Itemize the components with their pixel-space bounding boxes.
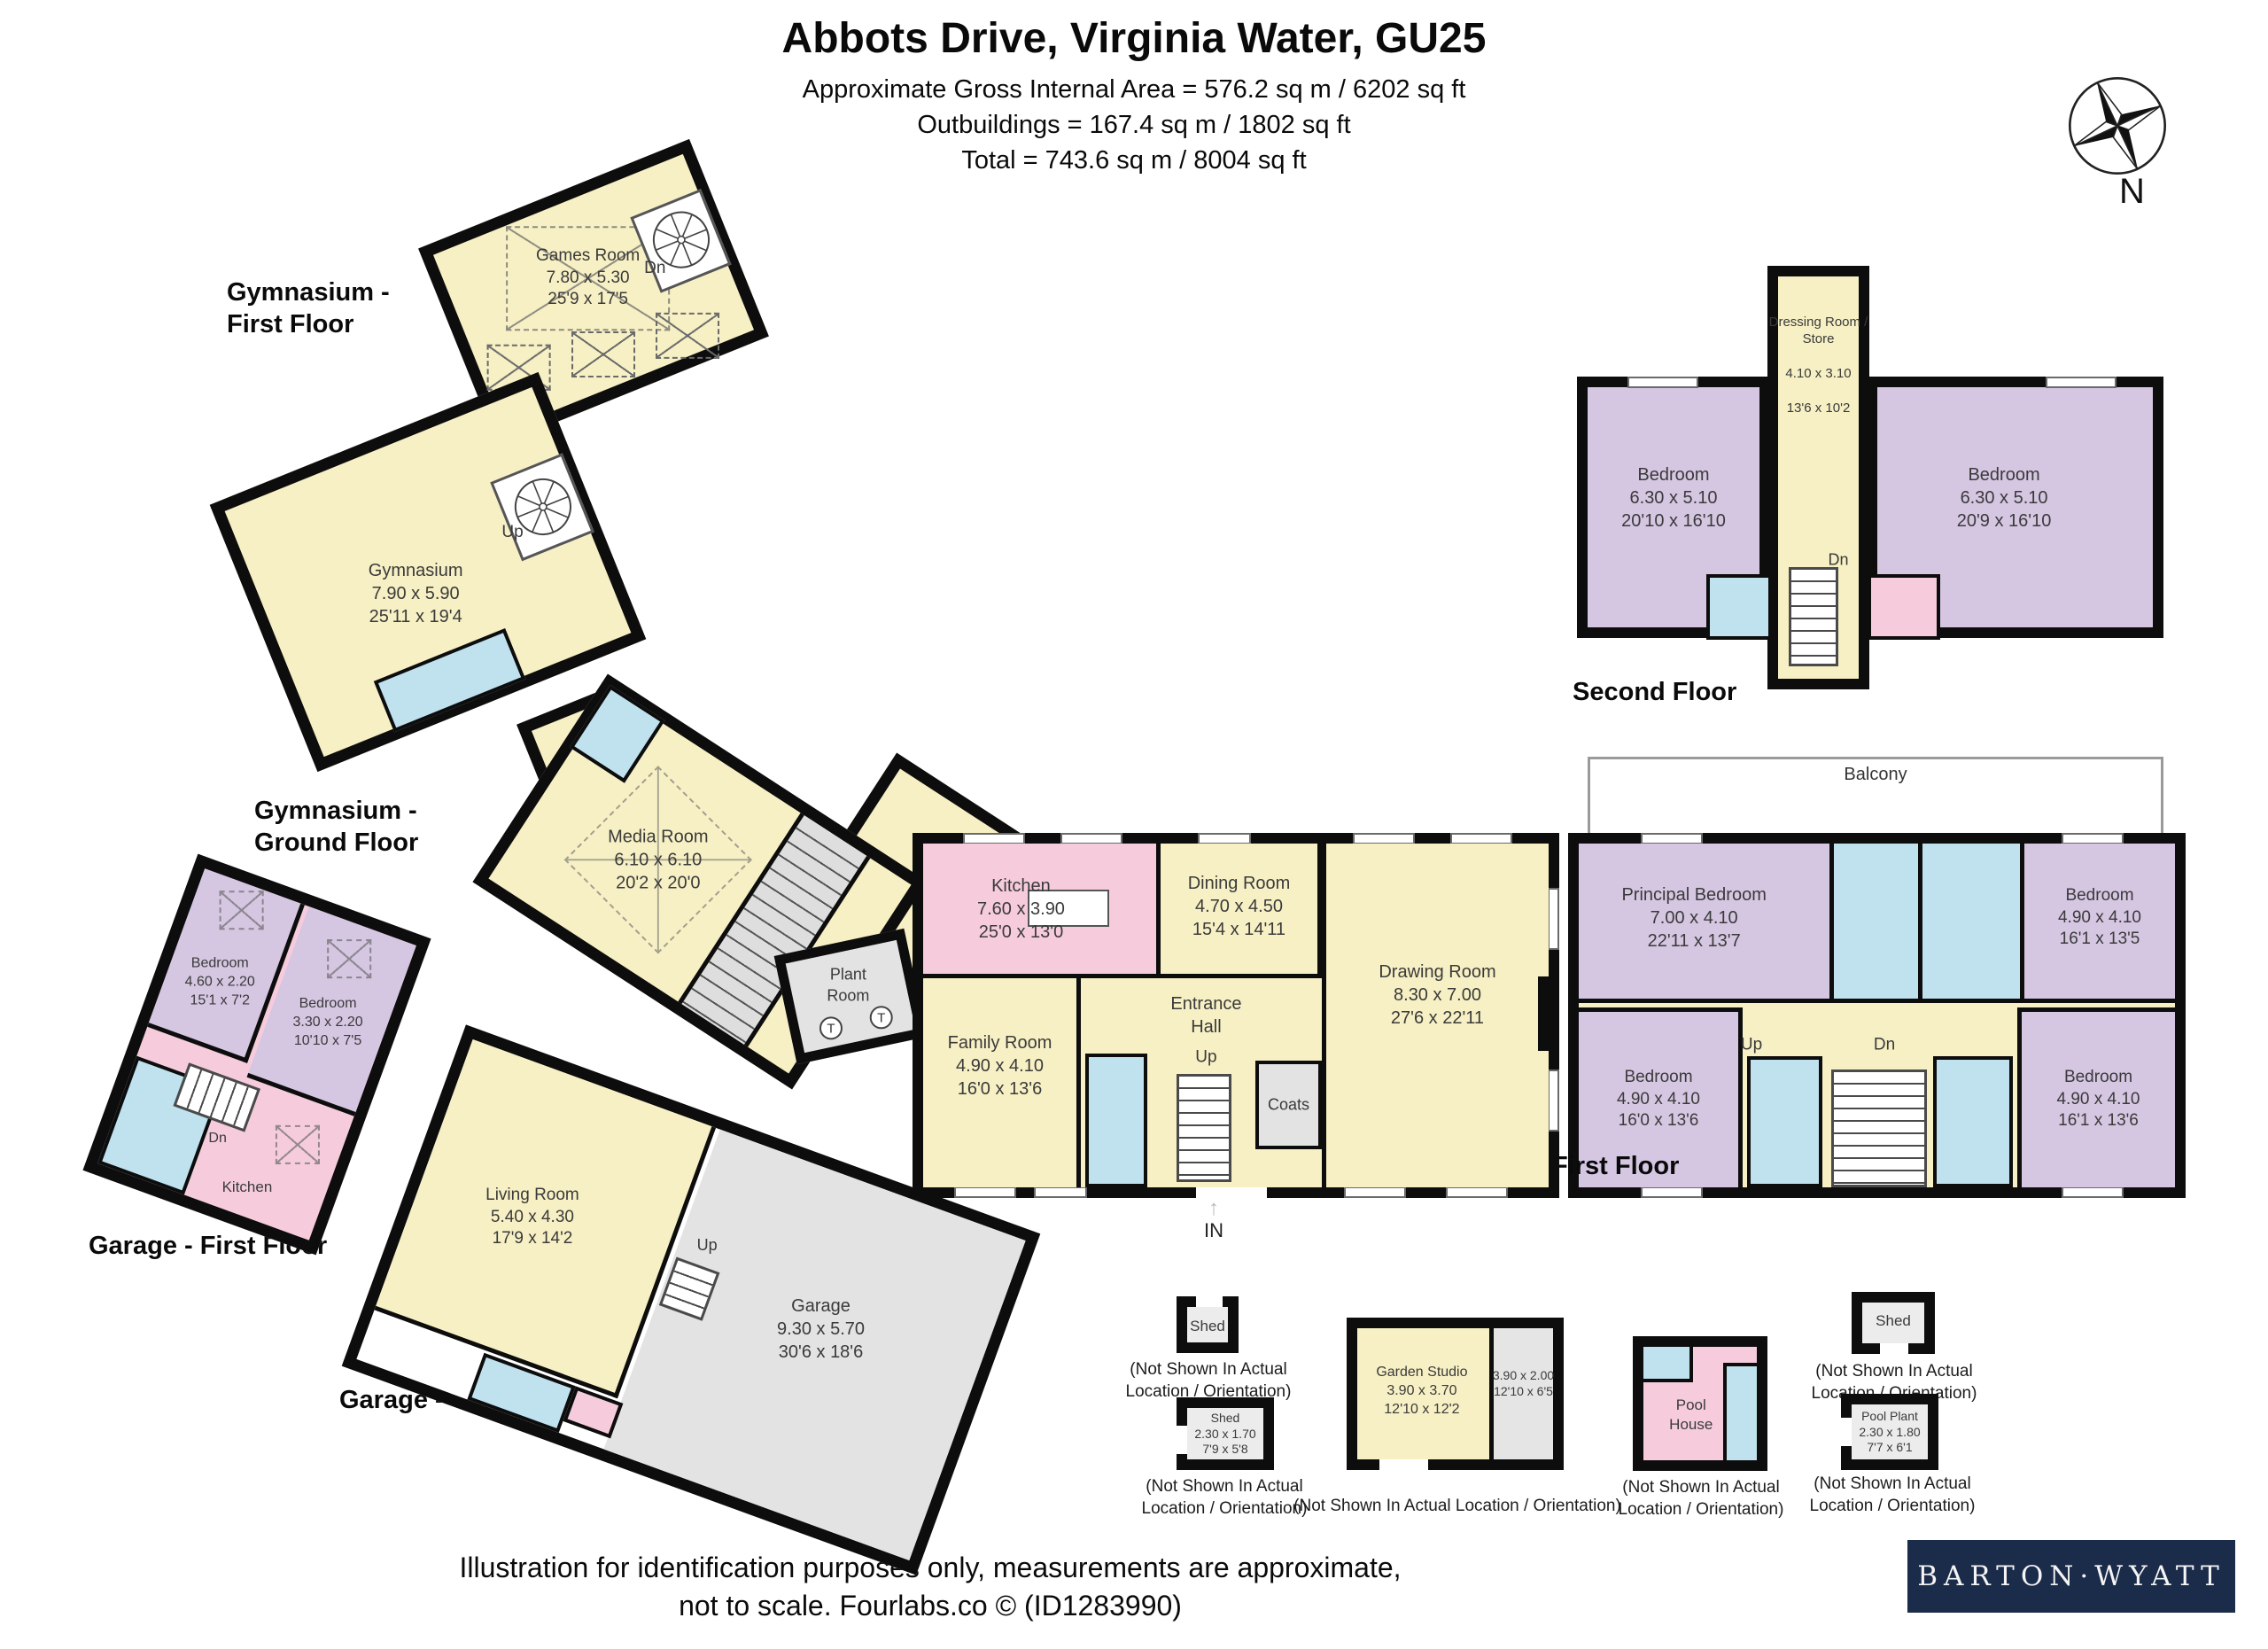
second-floor-bedroom-left-label: Bedroom 6.30 x 5.10 20'10 x 16'10	[1621, 463, 1726, 533]
dining-room: Dining Room 4.70 x 4.50 15'4 x 14'11	[1161, 844, 1322, 978]
window	[954, 1186, 1016, 1198]
disclaimer-text: Illustration for identification purposes…	[0, 1549, 1860, 1625]
skylight-icon	[327, 939, 371, 978]
first-floor-bathroom-right	[1933, 1056, 2013, 1187]
spiral-stair-well	[490, 453, 594, 561]
window	[1034, 1186, 1087, 1198]
pool-plant-plan: Pool Plant 2.30 x 1.80 7'7 x 6'1	[1841, 1394, 1938, 1470]
garden-studio-plan: 3.90 x 2.00 12'10 x 6'5 Garden Studio 3.…	[1347, 1318, 1564, 1470]
plant-room-label: Plant Room	[827, 945, 869, 1028]
second-floor-plan: Dressing Room / Store 4.10 x 3.10 13'6 x…	[1577, 266, 2166, 689]
first-floor-staircase	[1831, 1070, 1927, 1187]
pool-house-plan: Pool House	[1633, 1336, 1767, 1471]
compass-icon	[2064, 73, 2171, 179]
window	[1641, 1186, 1703, 1198]
front-door-opening	[1196, 1187, 1267, 1198]
family-room-label: Family Room 4.90 x 4.10 16'0 x 13'6	[948, 1031, 1052, 1101]
second-floor-bedroom-right-label: Bedroom 6.30 x 5.10 20'9 x 16'10	[1957, 463, 2052, 533]
first-floor-dn-label: Dn	[1874, 1035, 1895, 1057]
shed-medium-plan: Shed 2.30 x 1.70 7'9 x 5'8	[1177, 1397, 1274, 1470]
pool-house-caption: (Not Shown In Actual Location / Orientat…	[1595, 1477, 1807, 1521]
first-floor-bedroom-bottom-left-label: Bedroom 4.90 x 4.10 16'0 x 13'6	[1617, 1067, 1700, 1132]
coats-cupboard: Coats	[1255, 1061, 1322, 1149]
pool-plant-caption: (Not Shown In Actual Location / Orientat…	[1798, 1474, 1986, 1517]
gross-area-line: Approximate Gross Internal Area = 576.2 …	[0, 75, 2268, 105]
first-floor-label: First Floor	[1552, 1150, 1679, 1182]
garage-first-dn-label: Dn	[208, 1130, 226, 1148]
balcony: Balcony	[1588, 757, 2163, 842]
pool-house-label: Pool House	[1669, 1376, 1713, 1454]
garage-kitchen-label: Kitchen	[222, 1178, 273, 1197]
gymnasium-label: Gymnasium 7.90 x 5.90 25'11 x 19'4	[369, 560, 463, 629]
pool-house-wc	[1723, 1363, 1757, 1460]
second-floor-staircase	[1789, 567, 1838, 666]
gym-first-stairs-label: Dn	[644, 258, 665, 280]
family-room: Family Room 4.90 x 4.10 16'0 x 13'6	[923, 978, 1081, 1187]
first-floor-bedroom-top-right: Bedroom 4.90 x 4.10 16'1 x 13'5	[2024, 844, 2175, 1003]
gym-shower-room	[374, 628, 526, 732]
media-room-label: Media Room 6.10 x 6.10 20'2 x 20'0	[608, 826, 708, 895]
first-floor-block: Principal Bedroom 7.00 x 4.10 22'11 x 13…	[1568, 833, 2186, 1198]
gymnasium-first-floor-label: Gymnasium - First Floor	[227, 276, 390, 341]
plant-door-opening	[1841, 1418, 1852, 1446]
second-floor-shower-room	[1706, 574, 1772, 640]
first-floor-up-label: Up	[1741, 1035, 1762, 1057]
shed-door-opening	[1880, 1343, 1908, 1354]
first-floor-plan: Balcony Principal Bedroom 7.00 x 4.10 22…	[1568, 755, 2188, 1198]
window	[1344, 1186, 1406, 1198]
garden-store-label: 3.90 x 2.00 12'10 x 6'5	[1493, 1367, 1554, 1399]
living-room-label: Living Room 5.40 x 4.30 17'9 x 14'2	[485, 1186, 579, 1251]
drawing-room: Drawing Room 8.30 x 7.00 27'6 x 22'11	[1322, 844, 1549, 1187]
first-floor-shower-room-left	[1747, 1056, 1822, 1187]
studio-door-opening	[1379, 1459, 1428, 1470]
second-floor-stairs-label: Dn	[1828, 549, 1848, 570]
shed-right-label: Shed	[1876, 1311, 1911, 1331]
first-floor-ensuite-right	[1922, 844, 2024, 1003]
second-floor-label: Second Floor	[1573, 676, 1736, 708]
coats-label: Coats	[1268, 1094, 1309, 1115]
first-floor-ensuite-left	[1834, 844, 1922, 1003]
barton-wyatt-logo-text: BARTON·WYATT	[1917, 1560, 2225, 1592]
outbuildings-line: Outbuildings = 167.4 sq m / 1802 sq ft	[0, 111, 2268, 140]
principal-bedroom-label: Principal Bedroom 7.00 x 4.10 22'11 x 13…	[1621, 883, 1766, 953]
entry-in-label: IN	[1187, 1219, 1240, 1242]
games-room-label: Games Room 7.80 x 5.30 25'9 x 17'5	[536, 245, 640, 311]
main-staircase	[1177, 1074, 1231, 1182]
compass-north-label: N	[2119, 172, 2145, 212]
cloakroom-wc	[1085, 1054, 1147, 1187]
skylight-icon	[220, 891, 264, 930]
floorplan-page: Abbots Drive, Virginia Water, GU25 Appro…	[0, 0, 2268, 1649]
gym-equipment-icon	[571, 331, 635, 377]
shed-right-plan: Shed	[1852, 1292, 1935, 1354]
drawing-room-label: Drawing Room 8.30 x 7.00 27'6 x 22'11	[1379, 961, 1495, 1030]
shed-small-caption: (Not Shown In Actual Location / Orientat…	[1115, 1359, 1302, 1403]
water-tank-icon: T	[870, 1006, 893, 1029]
shed-door-opening	[1177, 1426, 1187, 1454]
second-floor-bathroom	[1868, 574, 1940, 640]
garden-studio-label: Garden Studio 3.90 x 3.70 12'10 x 12'2	[1376, 1364, 1467, 1419]
dining-room-label: Dining Room 4.70 x 4.50 15'4 x 14'11	[1188, 872, 1291, 941]
balcony-label: Balcony	[1590, 765, 2161, 785]
skylight-icon	[276, 1125, 320, 1164]
second-floor-tower: Dressing Room / Store 4.10 x 3.10 13'6 x…	[1767, 266, 1869, 689]
kitchen-room: Kitchen 7.60 x 3.90 25'0 x 13'0	[923, 844, 1161, 978]
dressing-room-label: Dressing Room / Store 4.10 x 3.10 13'6 x…	[1752, 296, 1885, 434]
window	[1548, 888, 1559, 950]
gym-equipment-icon	[656, 313, 719, 359]
barton-wyatt-logo: BARTON·WYATT	[1907, 1540, 2235, 1613]
water-tank-icon: T	[819, 1016, 843, 1039]
ground-floor-plan: Kitchen 7.60 x 3.90 25'0 x 13'0 Dining R…	[913, 833, 1559, 1198]
window	[1627, 377, 1698, 388]
page-title: Abbots Drive, Virginia Water, GU25	[0, 14, 2268, 63]
garage-label: Garage 9.30 x 5.70 30'6 x 18'6	[777, 1295, 865, 1364]
garden-studio-caption: (Not Shown In Actual Location / Orientat…	[1285, 1496, 1630, 1518]
first-floor-bedroom-bottom-right: Bedroom 4.90 x 4.10 16'1 x 13'6	[2017, 1007, 2175, 1187]
hall-stairs-label: Up	[1195, 1046, 1216, 1069]
principal-bedroom: Principal Bedroom 7.00 x 4.10 22'11 x 13…	[1579, 844, 1834, 1003]
gymnasium-ground-floor-label: Gymnasium - Ground Floor	[254, 795, 418, 860]
shed-small-plan: Shed	[1177, 1296, 1239, 1353]
shed-small-label: Shed	[1190, 1317, 1225, 1336]
window	[2062, 1186, 2124, 1198]
window	[1446, 1186, 1508, 1198]
pool-plant-label: Pool Plant 2.30 x 1.80 7'7 x 6'1	[1859, 1409, 1920, 1456]
shed-door-opening	[1196, 1296, 1223, 1307]
garage-ground-up-label: Up	[697, 1235, 718, 1256]
header: Abbots Drive, Virginia Water, GU25 Appro…	[0, 14, 2268, 175]
garage-first-floor-plan: Bedroom 4.60 x 2.20 15'1 x 7'2 Bedroom 3…	[82, 854, 431, 1256]
fireplace-icon	[1538, 976, 1549, 1051]
compass: N	[2064, 73, 2179, 214]
entry-arrow-icon: ↑	[1187, 1198, 1240, 1219]
window	[1548, 1070, 1559, 1132]
shed-medium-label: Shed 2.30 x 1.70 7'9 x 5'8	[1194, 1411, 1255, 1458]
total-line: Total = 743.6 sq m / 8004 sq ft	[0, 146, 2268, 175]
garage-bedroom-right-label: Bedroom 3.30 x 2.20 10'10 x 7'5	[292, 995, 362, 1050]
kitchen-label: Kitchen 7.60 x 3.90 25'0 x 13'0	[977, 875, 1065, 944]
garden-store-room: 3.90 x 2.00 12'10 x 6'5	[1489, 1328, 1553, 1459]
first-floor-bedroom-bottom-right-label: Bedroom 4.90 x 4.10 16'1 x 13'6	[2056, 1067, 2140, 1132]
garage-bedroom-left-label: Bedroom 4.60 x 2.20 15'1 x 7'2	[185, 954, 255, 1009]
gym-ground-stairs-label: Up	[501, 522, 523, 544]
first-floor-bedroom-top-right-label: Bedroom 4.90 x 4.10 16'1 x 13'5	[2058, 885, 2141, 951]
window	[2046, 377, 2117, 388]
